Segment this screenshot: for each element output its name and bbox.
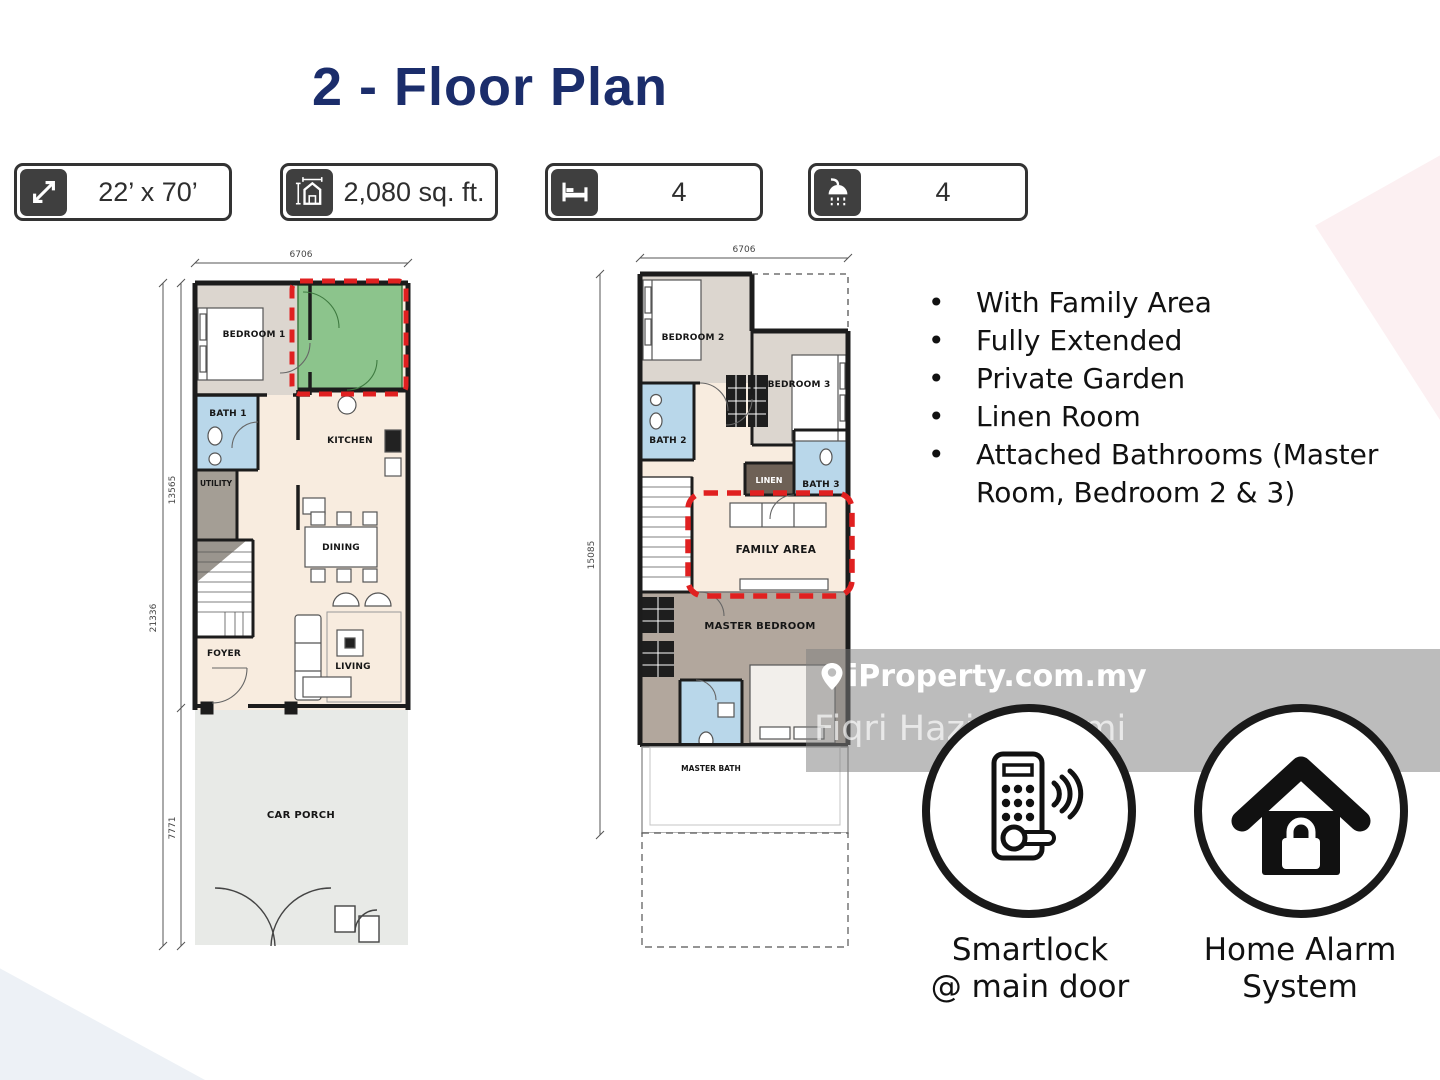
room-label-utility: UTILITY bbox=[200, 479, 233, 488]
badge-bathrooms-count: 4 bbox=[861, 177, 1025, 208]
dim-first-height: 15085 bbox=[587, 541, 597, 570]
dim-ground-porch: 7771 bbox=[168, 817, 178, 840]
badge-bedrooms: 4 bbox=[545, 163, 763, 221]
floor-area-icon bbox=[286, 169, 333, 216]
dim-ground-width: 6706 bbox=[290, 250, 313, 260]
room-label-master-bath: MASTER BATH bbox=[681, 764, 741, 773]
bed-icon bbox=[551, 169, 598, 216]
watermark-brand-text: iProperty.com.my bbox=[848, 659, 1147, 694]
slide: { "slide": { "title": "2 - Floor Plan" }… bbox=[0, 0, 1440, 1080]
shower-icon bbox=[814, 169, 861, 216]
ground-floor-plan: BEDROOM 1 BATH 1 UTILITY KITCHEN DINING … bbox=[135, 240, 435, 970]
feature-text: Linen Room bbox=[976, 398, 1141, 436]
room-label-family-area: FAMILY AREA bbox=[736, 544, 817, 556]
smartlock-label-line1: Smartlock bbox=[898, 932, 1162, 969]
room-label-bath3: BATH 3 bbox=[802, 480, 839, 490]
smartlock-label-line2: @ main door bbox=[898, 969, 1162, 1006]
bath1-area bbox=[195, 395, 258, 470]
corner-decor-bottom-left bbox=[0, 956, 205, 1080]
page-title: 2 - Floor Plan bbox=[312, 56, 668, 118]
room-label-living: LIVING bbox=[335, 662, 371, 672]
feature-item: Linen Room bbox=[916, 398, 1421, 436]
room-label-bedroom1: BEDROOM 1 bbox=[223, 330, 286, 340]
feature-text: With Family Area bbox=[976, 284, 1212, 322]
watermark-brand: iProperty.com.my bbox=[820, 659, 1147, 694]
room-label-bath2: BATH 2 bbox=[649, 436, 686, 446]
smartlock-icon bbox=[954, 736, 1104, 886]
dim-ground-total: 21336 bbox=[149, 603, 159, 632]
feature-item: Private Garden bbox=[916, 360, 1421, 398]
first-stairs bbox=[640, 477, 692, 592]
badge-area: 2,080 sq. ft. bbox=[280, 163, 498, 221]
dim-first-width: 6706 bbox=[733, 245, 756, 255]
badge-bedrooms-count: 4 bbox=[598, 177, 760, 208]
badge-bathrooms: 4 bbox=[808, 163, 1028, 221]
feature-item: Attached Bathrooms (Master Room, Bedroom… bbox=[916, 436, 1421, 512]
room-label-foyer: FOYER bbox=[207, 649, 241, 659]
feature-list: With Family Area Fully Extended Private … bbox=[916, 284, 1421, 512]
room-label-bath1: BATH 1 bbox=[209, 409, 246, 419]
room-label-bedroom2: BEDROOM 2 bbox=[662, 333, 725, 343]
room-label-master-bedroom: MASTER BEDROOM bbox=[704, 621, 815, 632]
home-alarm-label: Home Alarm System bbox=[1178, 932, 1422, 1006]
badge-area-label: 2,080 sq. ft. bbox=[333, 177, 495, 208]
feature-item: With Family Area bbox=[916, 284, 1421, 322]
first-floor-plan: BEDROOM 2 BEDROOM 3 BATH 2 LINEN BATH 3 … bbox=[580, 235, 880, 965]
room-label-dining: DINING bbox=[322, 543, 360, 553]
dim-ground-upper: 13565 bbox=[168, 476, 178, 505]
room-label-car-porch: CAR PORCH bbox=[267, 810, 335, 821]
feature-item: Fully Extended bbox=[916, 322, 1421, 360]
badge-dimensions: 22’ x 70’ bbox=[14, 163, 232, 221]
home-alarm-label-line2: System bbox=[1178, 969, 1422, 1006]
room-label-kitchen: KITCHEN bbox=[327, 436, 373, 446]
diagonal-arrow-icon bbox=[20, 169, 67, 216]
home-alarm-feature bbox=[1194, 704, 1408, 918]
feature-text: Fully Extended bbox=[976, 322, 1182, 360]
open-above-area bbox=[752, 272, 848, 331]
ground-stairs bbox=[197, 540, 253, 637]
bath2-area bbox=[640, 383, 694, 460]
home-alarm-label-line1: Home Alarm bbox=[1178, 932, 1422, 969]
home-alarm-icon bbox=[1226, 741, 1376, 881]
garden-highlight-area bbox=[298, 285, 402, 390]
location-pin-icon bbox=[820, 662, 844, 692]
smartlock-feature bbox=[922, 704, 1136, 918]
feature-text: Attached Bathrooms (Master Room, Bedroom… bbox=[976, 436, 1421, 512]
room-label-bedroom3: BEDROOM 3 bbox=[768, 380, 831, 390]
feature-text: Private Garden bbox=[976, 360, 1185, 398]
terrace-and-extension bbox=[642, 747, 848, 947]
badge-dimensions-label: 22’ x 70’ bbox=[67, 177, 229, 208]
smartlock-label: Smartlock @ main door bbox=[898, 932, 1162, 1006]
room-label-linen: LINEN bbox=[756, 476, 783, 485]
